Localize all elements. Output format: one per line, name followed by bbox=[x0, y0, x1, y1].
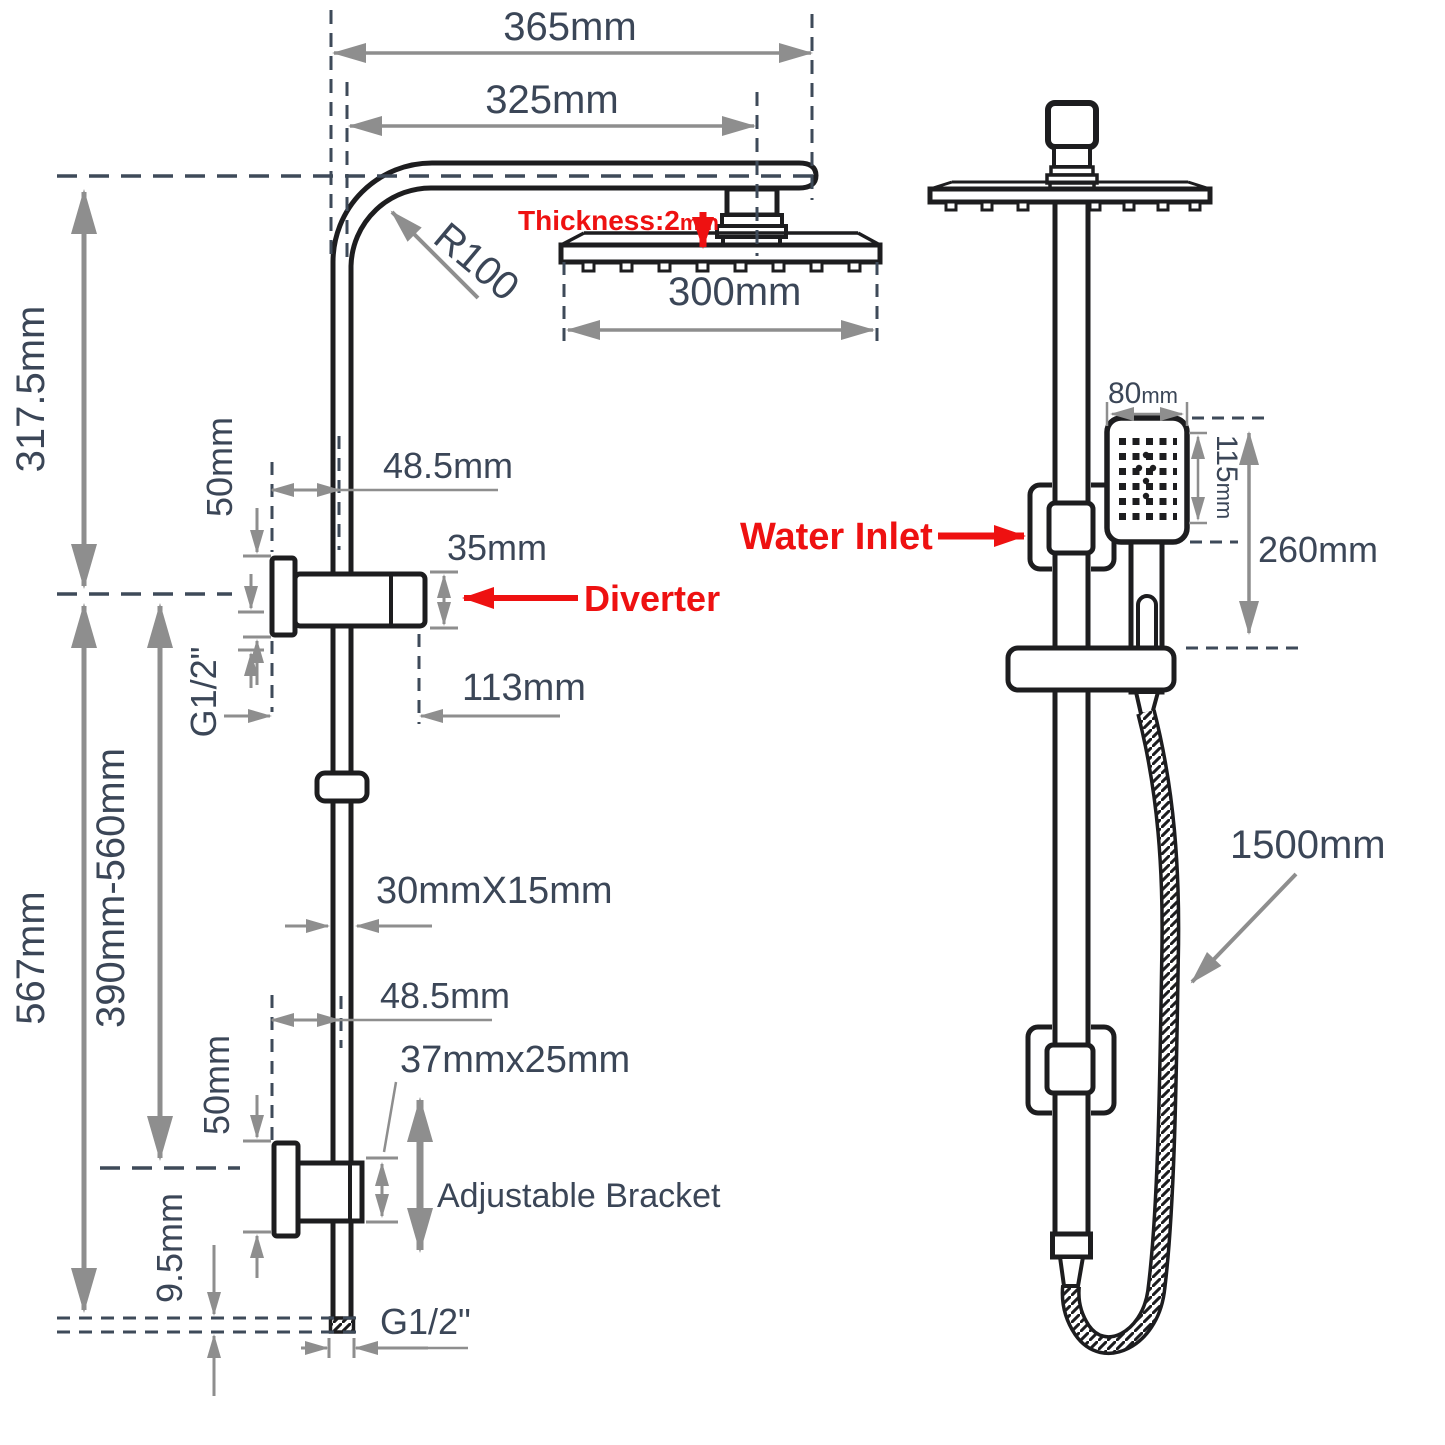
hand-shower-holder bbox=[1008, 648, 1174, 690]
dim-300: 300mm bbox=[668, 270, 801, 314]
label-water-inlet: Water Inlet bbox=[740, 516, 933, 558]
dim-30x15: 30mmX15mm bbox=[376, 870, 613, 912]
dim-50-upper: 50mm bbox=[199, 417, 240, 517]
dim-390-560: 390mm-560mm bbox=[89, 748, 133, 1028]
dim-485-upper: 48.5mm bbox=[383, 445, 513, 486]
bracket-body bbox=[298, 1163, 362, 1221]
hand-shower-button bbox=[1138, 596, 1156, 654]
dim-317: 317.5mm bbox=[9, 306, 53, 473]
dim-365: 365mm bbox=[503, 5, 636, 49]
dim-113: 113mm bbox=[462, 667, 586, 709]
diagram-svg: 365mm 325mm R100 Thickness:2mm 300mm 317… bbox=[0, 0, 1445, 1445]
label-diverter: Diverter bbox=[584, 578, 720, 619]
water-inlet-knob bbox=[1049, 503, 1093, 553]
dim-1500: 1500mm bbox=[1230, 823, 1386, 867]
dim-35: 35mm bbox=[447, 527, 547, 568]
diverter-body bbox=[295, 574, 425, 626]
hose-connector-bottom bbox=[1060, 1257, 1083, 1286]
bracket-wall-plate bbox=[274, 1143, 298, 1236]
dim-g12-upper: G1/2" bbox=[183, 647, 224, 738]
shower-dimension-diagram: 365mm 325mm R100 Thickness:2mm 300mm 317… bbox=[0, 0, 1445, 1445]
rail-bottom-thread bbox=[331, 1318, 354, 1332]
dim-325: 325mm bbox=[485, 78, 618, 122]
label-thickness: Thickness:2mm bbox=[518, 205, 719, 236]
dim-485-lower: 48.5mm bbox=[380, 975, 510, 1016]
rail2-end-cap bbox=[1053, 1234, 1091, 1257]
label-adjustable-bracket: Adjustable Bracket bbox=[437, 1177, 721, 1215]
dim-37x25: 37mmx25mm bbox=[400, 1039, 630, 1081]
diverter-wall-plate bbox=[272, 558, 295, 635]
dim-50-lower: 50mm bbox=[196, 1035, 237, 1135]
dim-95: 9.5mm bbox=[149, 1193, 190, 1303]
ceiling-connector bbox=[1047, 103, 1097, 190]
head-connector bbox=[717, 189, 786, 245]
dim-g12-bottom: G1/2" bbox=[380, 1301, 471, 1342]
dim-260: 260mm bbox=[1258, 529, 1378, 570]
dim-567: 567mm bbox=[9, 891, 53, 1024]
rail-slider bbox=[317, 773, 367, 801]
lower-bracket-knob bbox=[1047, 1045, 1093, 1093]
